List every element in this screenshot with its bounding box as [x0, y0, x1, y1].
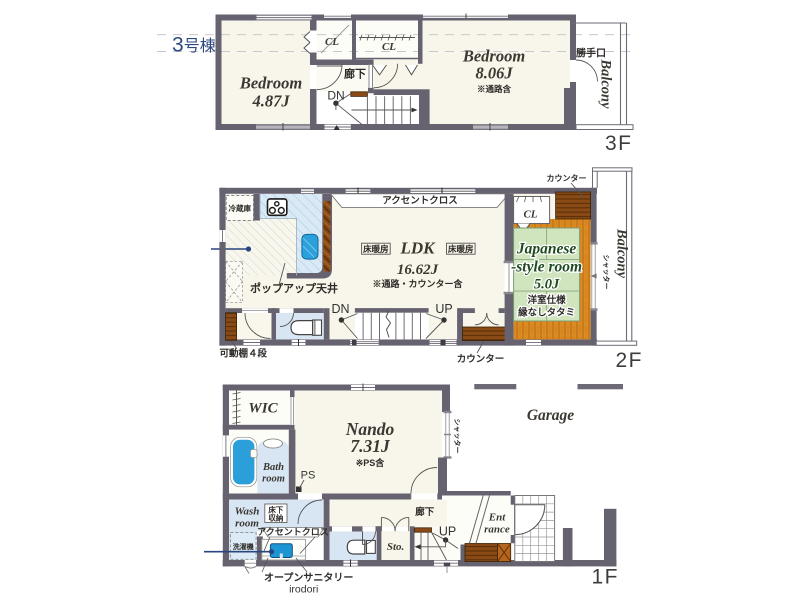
svg-text:Bath: Bath: [262, 462, 284, 473]
svg-text:Balcony: Balcony: [614, 228, 630, 279]
svg-text:廊下: 廊下: [415, 506, 435, 518]
svg-text:CL: CL: [523, 209, 537, 221]
svg-text:洗濯機: 洗濯機: [233, 542, 254, 551]
svg-text:カウンター: カウンター: [457, 353, 505, 365]
svg-text:PS: PS: [301, 470, 316, 482]
svg-text:Bedroom: Bedroom: [239, 74, 303, 93]
svg-text:-style room: -style room: [511, 259, 582, 276]
svg-text:シャッター: シャッター: [453, 419, 462, 454]
svg-text:冷蔵庫: 冷蔵庫: [229, 203, 252, 213]
svg-text:Balcony: Balcony: [598, 58, 614, 109]
svg-text:※通路含: ※通路含: [477, 84, 512, 94]
svg-text:※PS含: ※PS含: [356, 457, 386, 468]
svg-text:シャッター: シャッター: [602, 255, 611, 290]
svg-text:Ent: Ent: [488, 512, 506, 524]
svg-text:CL: CL: [382, 41, 396, 53]
svg-text:廊下: 廊下: [344, 67, 366, 81]
svg-text:アクセントクロス: アクセントクロス: [257, 527, 329, 537]
svg-text:洋室仕様: 洋室仕様: [528, 294, 567, 306]
svg-text:16.62J: 16.62J: [397, 262, 439, 278]
svg-text:1F: 1F: [592, 566, 620, 589]
svg-text:room: room: [262, 474, 285, 485]
svg-text:可動棚４段: 可動棚４段: [220, 348, 268, 360]
svg-text:DN: DN: [327, 89, 344, 103]
svg-text:アクセントクロス: アクセントクロス: [382, 196, 458, 207]
svg-text:UP: UP: [435, 302, 452, 316]
svg-text:縁なしタタミ: 縁なしタタミ: [518, 307, 575, 319]
svg-text:Japanese: Japanese: [516, 241, 577, 258]
svg-text:収納: 収納: [268, 513, 283, 523]
svg-text:4.87J: 4.87J: [251, 92, 290, 111]
svg-text:7.31J: 7.31J: [350, 436, 391, 456]
svg-text:LDK: LDK: [400, 239, 437, 258]
svg-text:勝手口: 勝手口: [576, 47, 606, 60]
svg-text:8.06J: 8.06J: [475, 64, 513, 83]
svg-text:rance: rance: [484, 524, 510, 536]
svg-text:UP: UP: [439, 525, 456, 539]
svg-text:Garage: Garage: [527, 407, 574, 424]
svg-text:room: room: [235, 518, 259, 530]
svg-text:ポップアップ天井: ポップアップ天井: [250, 281, 338, 295]
svg-text:CL: CL: [325, 36, 339, 48]
svg-text:DN: DN: [331, 302, 349, 316]
svg-text:カウンター: カウンター: [547, 173, 587, 183]
svg-text:※通路・カウンター含: ※通路・カウンター含: [372, 278, 463, 289]
svg-text:5.0J: 5.0J: [534, 277, 560, 293]
svg-text:2F: 2F: [616, 349, 644, 372]
svg-text:床暖房: 床暖房: [448, 244, 474, 254]
svg-text:Wash: Wash: [235, 506, 260, 518]
svg-text:床暖房: 床暖房: [363, 244, 389, 254]
svg-text:オープンサニタリー: オープンサニタリー: [264, 571, 353, 584]
svg-text:3F: 3F: [605, 132, 633, 155]
svg-text:WIC: WIC: [248, 401, 278, 417]
svg-text:Sto.: Sto.: [387, 541, 404, 553]
svg-text:irodori: irodori: [289, 584, 318, 596]
